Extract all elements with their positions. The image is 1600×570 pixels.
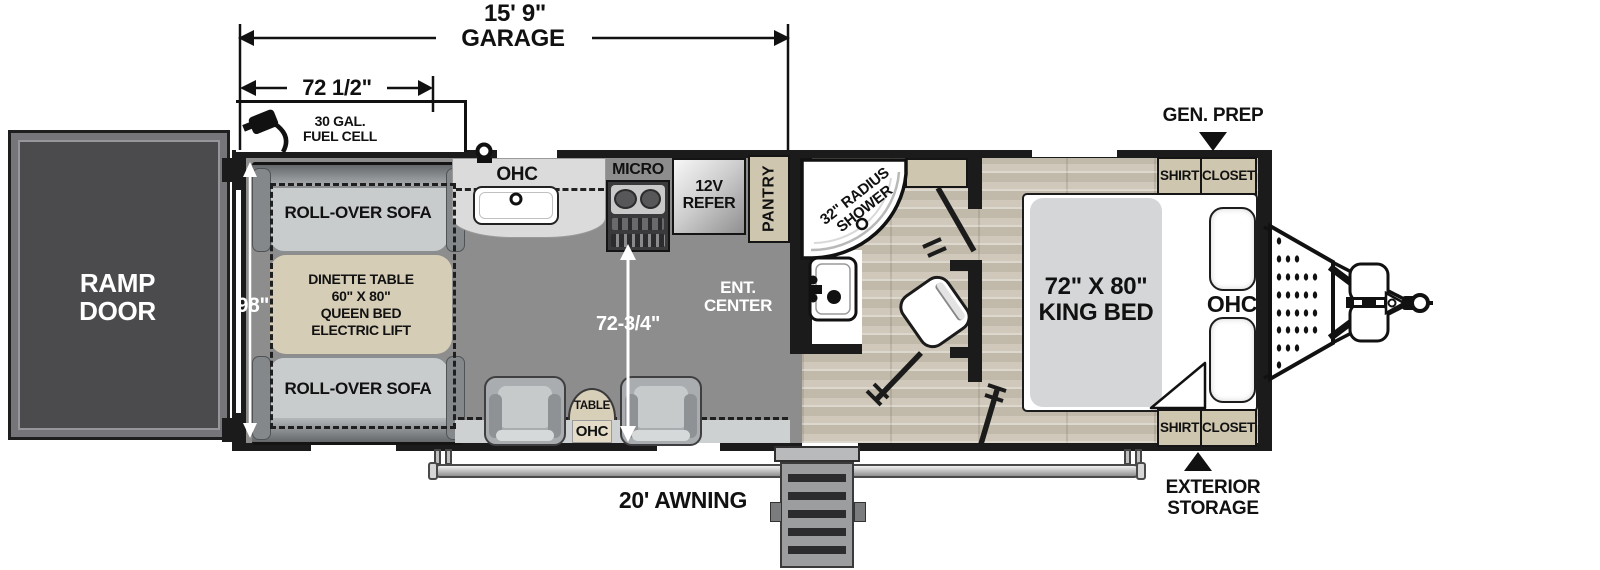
coupler-latch: [1402, 296, 1418, 310]
exterior-storage-arrow: [1184, 452, 1212, 471]
ramp-door-label: RAMP DOOR: [30, 262, 205, 332]
ent-center-label-line1: ENT.: [720, 279, 756, 297]
propane-tank-2: [1350, 303, 1388, 341]
refrigerator-label-line1: 12V: [695, 178, 723, 195]
shirt-closet-bottom-word2: CLOSET: [1202, 411, 1255, 445]
galley-span-dim: 72-3/4": [568, 313, 688, 337]
awning-endcap-left: [428, 462, 438, 480]
wall-garage-bath: [790, 157, 812, 353]
rock-guard: [1270, 226, 1333, 379]
range-stove: [606, 180, 670, 252]
ramp-hinge-top: [222, 158, 240, 182]
shirt-closet-bottom-word1: SHIRT: [1159, 411, 1200, 445]
tongue-jack: [1386, 293, 1404, 313]
table-label: TABLE: [568, 398, 616, 414]
dinette-label-line1: DINETTE TABLE: [308, 271, 414, 288]
front-section-dim: 72 1/2": [287, 76, 387, 100]
wall-toilet-stub-top: [950, 260, 982, 271]
wall-bath-bedroom-top: [968, 157, 982, 209]
chair-left: [484, 376, 566, 446]
king-bed-label: 72" X 80" KING BED: [1022, 268, 1170, 332]
shirt-closet-top-word2: CLOSET: [1202, 159, 1255, 193]
awning-bracket-right: [1124, 449, 1131, 465]
ramp-hinge-bottom: [222, 418, 240, 442]
garage-length-word: GARAGE: [438, 26, 588, 52]
dinette-label-line3: QUEEN BED: [321, 305, 402, 322]
pillow-top: [1209, 207, 1256, 291]
pillow-bottom: [1209, 317, 1256, 403]
propane-tank-1: [1350, 264, 1388, 302]
table-ohc-label: OHC: [570, 422, 614, 442]
window-gap-bedroom: [1032, 150, 1117, 157]
entry-steps: [774, 446, 860, 568]
dinette-label-line2: 60" X 80": [332, 288, 391, 305]
shirt-closet-bottom: SHIRT CLOSET: [1157, 409, 1257, 447]
fuel-cell-label-line2: FUEL CELL: [303, 129, 377, 144]
wall-vanity-stub: [790, 344, 862, 354]
sofa-bottom-label: ROLL-OVER SOFA: [272, 376, 444, 402]
fuel-cell-label: 30 GAL. FUEL CELL: [290, 108, 390, 150]
dinette-label-line4: ELECTRIC LIFT: [311, 322, 411, 339]
refrigerator-label-line2: REFER: [683, 195, 736, 212]
gen-prep-arrow: [1199, 132, 1227, 151]
exterior-storage-label: EXTERIOR STORAGE: [1133, 476, 1293, 522]
awning-bracket-left2: [445, 449, 452, 465]
awning-label: 20' AWNING: [583, 487, 783, 513]
kitchen-ohc-label: OHC: [482, 163, 552, 187]
ent-center-label-line2: CENTER: [704, 297, 772, 315]
dinette-label: DINETTE TABLE 60" X 80" QUEEN BED ELECTR…: [280, 262, 442, 348]
wall-bath-bedroom-mid: [968, 260, 982, 382]
ramp-door-label-line1: RAMP: [80, 269, 155, 297]
king-bed-label-line2: KING BED: [1039, 300, 1154, 326]
sofa-top-label: ROLL-OVER SOFA: [272, 200, 444, 226]
king-bed-label-line1: 72" X 80": [1045, 274, 1148, 300]
trailer-nose: [1264, 226, 1433, 379]
chair-right: [620, 376, 702, 446]
sofa-top-arm-left: [252, 168, 271, 252]
garage-length-value: 15' 9": [440, 1, 590, 27]
pantry-label: PANTRY: [748, 157, 790, 241]
bed-ohc-label: OHC: [1202, 291, 1262, 317]
refrigerator-label: 12V REFER: [672, 172, 746, 218]
coupler-ball: [1412, 295, 1428, 311]
ramp-door-label-line2: DOOR: [79, 297, 156, 325]
window-gap-kitchen: [497, 150, 557, 158]
wall-toilet-stub-bottom: [950, 347, 982, 358]
kitchen-sink: [473, 186, 559, 225]
ent-center-label: ENT. CENTER: [688, 274, 788, 320]
shirt-closet-top-word1: SHIRT: [1159, 159, 1200, 193]
rock-guard-vents: [1277, 237, 1317, 368]
exterior-storage-label-line1: EXTERIOR: [1166, 478, 1261, 499]
interior-width-dim: 98": [224, 294, 282, 318]
shirt-closet-top: SHIRT CLOSET: [1157, 157, 1257, 195]
exterior-storage-label-line2: STORAGE: [1167, 499, 1259, 520]
micro-label: MICRO: [606, 160, 670, 180]
sofa-bottom-arm-left: [252, 356, 271, 440]
gen-prep-label: GEN. PREP: [1143, 104, 1283, 128]
fuel-cell-label-line1: 30 GAL.: [315, 114, 366, 129]
floorplan-canvas: RAMP DOOR 30 GAL. FUEL CELL ROLL-OVER SO…: [0, 0, 1600, 570]
